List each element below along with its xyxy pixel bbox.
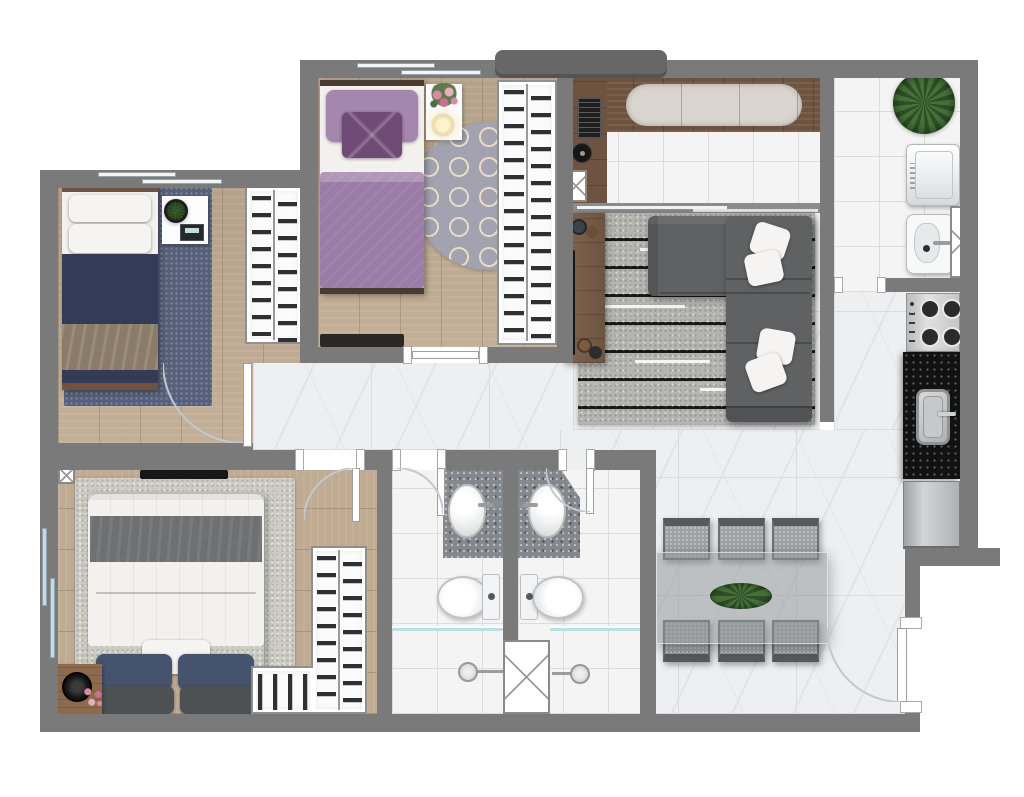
bedroom-1-bed xyxy=(62,186,158,390)
service-plant xyxy=(893,72,955,134)
wall-hall-bottom-b xyxy=(360,450,395,470)
window-pane xyxy=(42,528,47,606)
burner-2 xyxy=(942,299,962,319)
bath1-flush-button xyxy=(488,593,495,600)
master-window xyxy=(40,528,58,658)
wall-hall-top-a xyxy=(318,347,410,363)
bed-pillow-1 xyxy=(69,195,151,222)
bath1-shower-arm xyxy=(476,670,503,673)
burner-3 xyxy=(920,327,940,347)
rug-white-dash-3 xyxy=(635,360,710,363)
rack-decor-1 xyxy=(571,219,587,235)
mbed-stitch-line xyxy=(96,592,256,594)
bedroom-2-door-jamb-a xyxy=(403,346,412,364)
burner-1 xyxy=(920,299,940,319)
arc-path xyxy=(546,468,590,512)
window-pane xyxy=(50,578,55,658)
wall-bedroom-divider xyxy=(300,60,318,363)
wardrobe-hangers-left xyxy=(252,196,271,336)
arc-path xyxy=(397,468,443,514)
bath1-shower-head xyxy=(458,662,478,682)
wardrobe2-hangers-left xyxy=(504,90,524,338)
laundry-tank xyxy=(906,214,954,274)
mwardrobe-hangers-a xyxy=(317,556,336,708)
bedroom-1-book xyxy=(180,224,204,241)
bed-pillow-2 xyxy=(69,224,151,253)
mwardrobe-hangers-c xyxy=(258,674,312,710)
master-wardrobe-vertical xyxy=(311,546,367,714)
bedroom-2-window xyxy=(357,62,481,77)
wall-bath2-dining xyxy=(640,450,656,717)
master-tv xyxy=(140,470,228,479)
arc-path xyxy=(304,468,356,520)
tank-drain xyxy=(923,245,930,252)
master-door-arc xyxy=(304,468,356,520)
bedroom-2-wardrobe xyxy=(497,80,557,345)
bed-navy-duvet xyxy=(62,254,158,324)
bedroom-1-wardrobe xyxy=(245,186,303,344)
bath1-faucet-knob xyxy=(493,500,501,508)
bedroom-2-door-leaf xyxy=(412,351,479,359)
bath2-shower-head xyxy=(570,664,590,684)
bedroom-2-door-jamb-b xyxy=(479,346,488,364)
bedroom-1-plant xyxy=(164,199,188,223)
kitchen-sink-basin xyxy=(923,396,943,438)
wall-hall-bottom-a xyxy=(253,450,300,470)
dining-centerpiece-plant xyxy=(710,583,772,609)
washing-machine xyxy=(906,144,960,206)
wall-bath-divider xyxy=(503,470,518,640)
cooktop-knobs xyxy=(909,300,915,346)
mwardrobe-hangers-b xyxy=(343,562,362,710)
wardrobe-hangers-right xyxy=(278,202,297,342)
bath2-toilet-bowl xyxy=(532,576,584,619)
wall-balcony-service xyxy=(820,62,834,422)
service-kitchen-wall xyxy=(884,278,960,292)
kitchen-cooktop xyxy=(906,293,960,352)
arc-path xyxy=(827,628,901,702)
wall-hall-bottom-c xyxy=(443,450,563,470)
bath1-door-arc xyxy=(397,468,443,514)
bath1-shower-glass xyxy=(392,628,503,631)
master-door-jamb-a xyxy=(295,449,304,471)
mbed-navy-pillow-1 xyxy=(96,654,172,690)
window-pane xyxy=(98,172,176,177)
mbed-navy-pillow-2 xyxy=(178,654,254,690)
bedroom-2-bed xyxy=(320,80,424,294)
wall-master-bath1 xyxy=(377,470,392,717)
wall-bedroom1-south xyxy=(40,443,253,470)
wardrobe-divider xyxy=(273,190,275,340)
wall-bottom-outer xyxy=(40,714,920,732)
sliding-door-glass-2 xyxy=(693,209,818,212)
master-wardrobe-horizontal xyxy=(251,666,313,714)
bedroom-1-door-arc xyxy=(163,363,243,443)
bedroom-2-flowers xyxy=(427,83,461,113)
balcony-round-sink xyxy=(572,143,592,163)
master-flowers xyxy=(80,684,106,710)
bed-taupe-throw xyxy=(62,324,158,370)
master-bed xyxy=(88,494,264,714)
bed2-duvet xyxy=(320,172,424,288)
window-pane xyxy=(401,70,481,75)
window-pane xyxy=(357,63,435,68)
bedroom-1-window xyxy=(98,171,222,186)
bedroom-2-lamp xyxy=(430,112,456,138)
bed2-footboard xyxy=(320,288,424,294)
sofa-seat-line xyxy=(660,292,810,294)
arc-path xyxy=(163,363,243,443)
entry-door-jamb-b xyxy=(900,701,922,713)
rug-white-dash-2 xyxy=(600,305,685,308)
floor-plan-canvas xyxy=(0,0,1024,797)
refrigerator xyxy=(903,481,960,549)
rack-decor-4 xyxy=(589,346,602,359)
balcony-grill xyxy=(577,97,602,139)
wall-right-step xyxy=(905,548,1000,566)
bedroom-1-door-leaf xyxy=(243,363,252,447)
service-door-jamb-b xyxy=(877,277,886,293)
balcony-parapet-header xyxy=(495,50,667,78)
balcony-bench-cushion xyxy=(626,84,802,126)
sink-drain xyxy=(580,151,585,156)
wall-bedroom2-east xyxy=(557,60,573,363)
bath1-sink xyxy=(448,484,486,538)
bedroom-2-desk-shelf xyxy=(320,334,404,347)
kitchen-faucet xyxy=(938,412,956,416)
wall-hall-top-b xyxy=(482,347,557,363)
burner-4 xyxy=(942,327,962,347)
bed2-purple-pillow xyxy=(342,112,402,158)
washer-lid-line xyxy=(915,151,953,199)
bath2-flush-button xyxy=(526,593,533,600)
mwardrobe-divider xyxy=(338,550,340,710)
bath2-shower-glass xyxy=(550,628,640,631)
bed-navy-foot xyxy=(62,370,158,383)
wardrobe2-hangers-right xyxy=(531,96,551,341)
wardrobe2-divider xyxy=(526,84,528,341)
balcony-sliding-door xyxy=(573,203,822,213)
washer-panel xyxy=(910,163,915,189)
entry-door-arc xyxy=(827,628,901,702)
wall-right-outer xyxy=(960,60,978,566)
bath-duct-shaft xyxy=(503,640,550,714)
hallway-floor xyxy=(253,363,580,450)
rack-decor-2 xyxy=(586,226,598,238)
service-door-jamb-a xyxy=(834,277,843,293)
window-pane xyxy=(142,179,222,184)
bed-footboard xyxy=(62,383,158,390)
mbed-gray-throw xyxy=(90,516,262,562)
kitchen-sink xyxy=(916,389,950,445)
bath2-door-arc xyxy=(546,468,590,512)
book-page xyxy=(185,228,199,233)
mbed-dark-pillow-2 xyxy=(180,686,260,714)
